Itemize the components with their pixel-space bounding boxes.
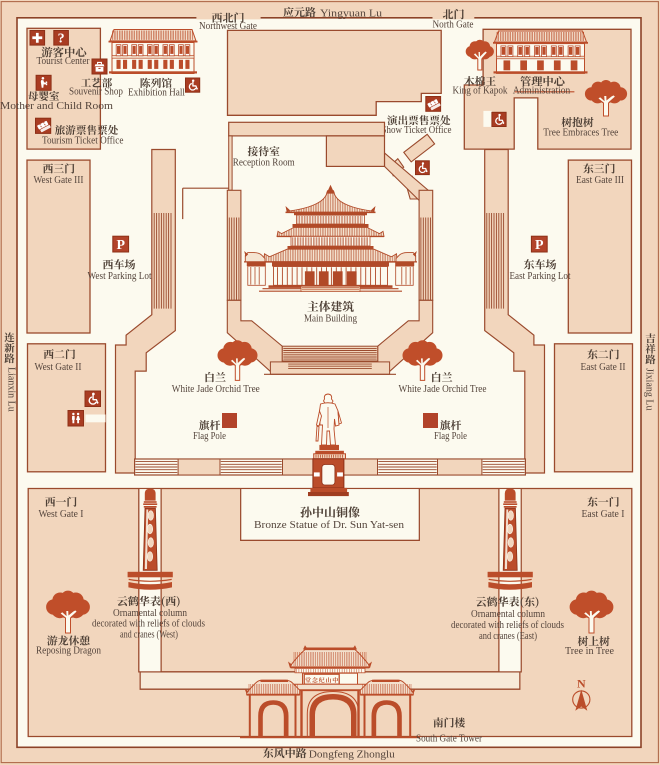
svg-text:East Gate I: East Gate I bbox=[582, 509, 625, 520]
svg-text:West Gate II: West Gate II bbox=[35, 362, 82, 373]
svg-text:Yingyuan Lu: Yingyuan Lu bbox=[320, 8, 383, 19]
svg-text:P: P bbox=[116, 238, 125, 253]
svg-text:White Jade Orchid Tree: White Jade Orchid Tree bbox=[172, 384, 261, 395]
svg-text:Reception Room: Reception Room bbox=[233, 157, 295, 168]
svg-text:Administration: Administration bbox=[513, 85, 571, 96]
svg-text:West Gate III: West Gate III bbox=[34, 175, 84, 186]
svg-text:Mother and Child Room: Mother and Child Room bbox=[0, 101, 113, 112]
svg-text:East Parking Lot: East Parking Lot bbox=[510, 271, 571, 282]
svg-text:N: N bbox=[577, 677, 586, 691]
svg-text:Flag Pole: Flag Pole bbox=[193, 431, 226, 442]
svg-text:East Gate II: East Gate II bbox=[581, 362, 626, 373]
svg-text:decorated with reliefs of clou: decorated with reliefs of clouds bbox=[92, 619, 205, 630]
svg-text:Ornamental column: Ornamental column bbox=[471, 609, 545, 620]
svg-text:Tourist Center: Tourist Center bbox=[37, 56, 91, 67]
svg-text:and cranes (East): and cranes (East) bbox=[479, 631, 537, 642]
svg-text:Tree in Tree: Tree in Tree bbox=[565, 646, 615, 657]
svg-text:King of Kapok: King of Kapok bbox=[453, 86, 508, 97]
svg-text:?: ? bbox=[58, 32, 65, 47]
svg-text:Tree Embraces Tree: Tree Embraces Tree bbox=[543, 128, 619, 139]
svg-text:Reposing Dragon: Reposing Dragon bbox=[36, 646, 101, 657]
svg-text:South Gate Tower: South Gate Tower bbox=[416, 733, 483, 744]
svg-text:and cranes (West): and cranes (West) bbox=[120, 629, 178, 640]
svg-text:P: P bbox=[535, 238, 544, 253]
svg-text:Exhibition Hall: Exhibition Hall bbox=[128, 87, 185, 98]
svg-text:Ornamental column: Ornamental column bbox=[113, 608, 187, 619]
svg-text:Jixiang Lu: Jixiang Lu bbox=[644, 368, 655, 411]
svg-text:East Gate III: East Gate III bbox=[576, 175, 624, 186]
svg-text:Tourism Ticket Office: Tourism Ticket Office bbox=[42, 136, 124, 147]
svg-text:Flag Pole: Flag Pole bbox=[434, 431, 467, 442]
svg-text:West Parking Lot: West Parking Lot bbox=[88, 271, 152, 282]
svg-text:Show Ticket Office: Show Ticket Office bbox=[382, 125, 452, 136]
svg-text:Dongfeng Zhonglu: Dongfeng Zhonglu bbox=[309, 748, 396, 760]
svg-text:Souvenir Shop: Souvenir Shop bbox=[69, 87, 123, 98]
svg-text:Main Building: Main Building bbox=[304, 314, 358, 325]
svg-text:decorated with reliefs of clou: decorated with reliefs of clouds bbox=[451, 620, 564, 631]
svg-text:North Gate: North Gate bbox=[433, 20, 475, 31]
svg-text:White Jade Orchid Tree: White Jade Orchid Tree bbox=[399, 384, 488, 395]
svg-text:Lianxin Lu: Lianxin Lu bbox=[6, 367, 17, 412]
svg-text:West Gate I: West Gate I bbox=[39, 509, 84, 520]
svg-text:Bronze Statue of Dr. Sun Yat-s: Bronze Statue of Dr. Sun Yat-sen bbox=[254, 520, 404, 531]
